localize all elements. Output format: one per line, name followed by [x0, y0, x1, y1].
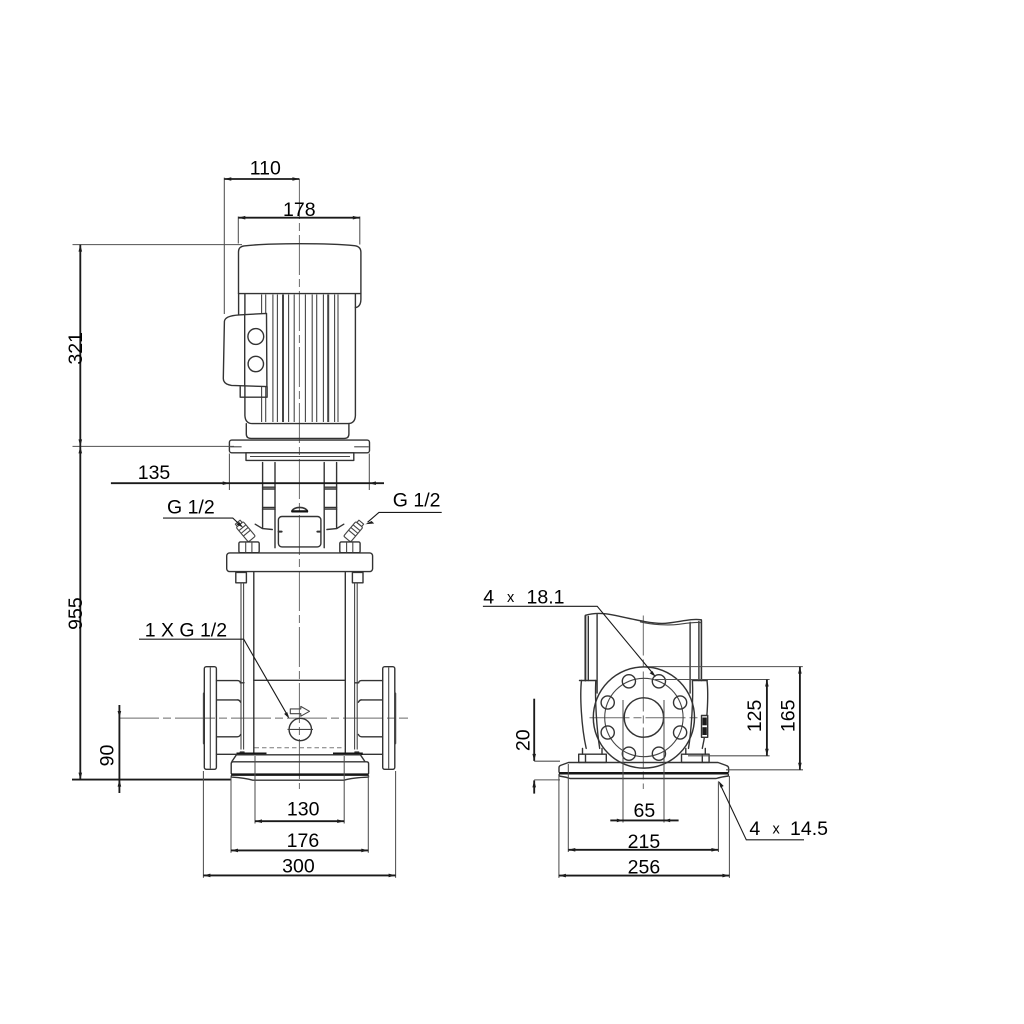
svg-text:G 1/2: G 1/2: [167, 496, 215, 518]
svg-text:256: 256: [628, 857, 661, 879]
svg-text:321: 321: [65, 332, 87, 365]
svg-text:165: 165: [778, 699, 800, 732]
svg-text:90: 90: [97, 745, 119, 767]
svg-text:215: 215: [628, 831, 661, 853]
svg-text:176: 176: [287, 830, 320, 852]
svg-text:178: 178: [283, 199, 316, 221]
svg-text:G 1/2: G 1/2: [393, 490, 441, 512]
svg-text:955: 955: [65, 597, 87, 630]
svg-text:18.1: 18.1: [527, 587, 565, 609]
svg-text:x: x: [773, 822, 781, 838]
svg-text:14.5: 14.5: [790, 818, 828, 840]
svg-text:4: 4: [749, 818, 760, 840]
svg-text:135: 135: [138, 462, 171, 484]
svg-text:130: 130: [287, 799, 320, 821]
svg-text:1 X G 1/2: 1 X G 1/2: [145, 619, 227, 641]
svg-text:65: 65: [634, 800, 656, 822]
svg-text:20: 20: [513, 729, 535, 751]
svg-text:x: x: [507, 590, 515, 606]
svg-text:4: 4: [483, 587, 494, 609]
svg-text:125: 125: [744, 699, 766, 732]
svg-text:300: 300: [282, 855, 315, 877]
svg-text:110: 110: [250, 157, 281, 179]
